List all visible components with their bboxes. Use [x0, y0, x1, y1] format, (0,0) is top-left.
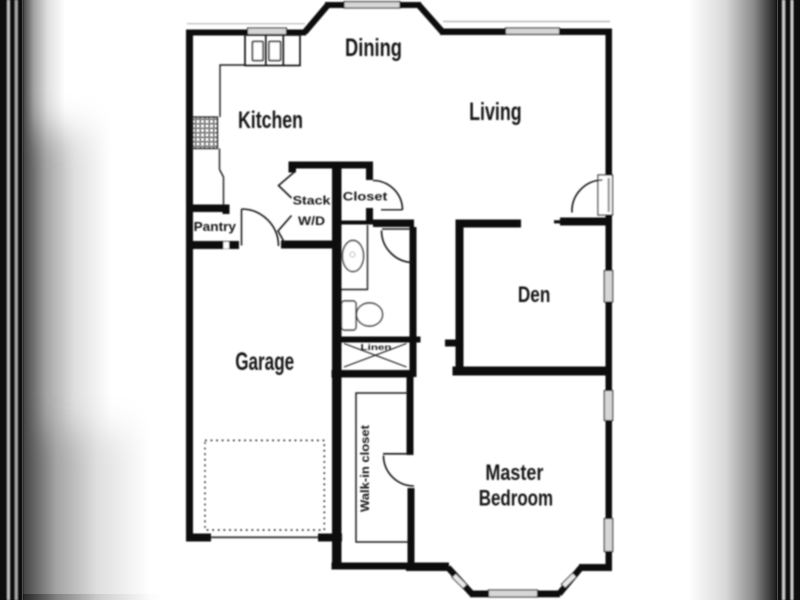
svg-text:Pantry: Pantry: [194, 220, 236, 234]
svg-text:Dining: Dining: [345, 34, 402, 62]
svg-text:W/D: W/D: [298, 214, 325, 228]
svg-text:Stack: Stack: [293, 195, 332, 207]
svg-text:Master: Master: [485, 460, 543, 485]
svg-text:Bedroom: Bedroom: [479, 486, 553, 511]
svg-text:Linen: Linen: [361, 342, 392, 352]
svg-text:Closet: Closet: [343, 190, 388, 204]
svg-text:Garage: Garage: [235, 348, 294, 376]
svg-text:Den: Den: [518, 282, 550, 307]
svg-text:Kitchen: Kitchen: [238, 107, 303, 134]
svg-text:Living: Living: [469, 98, 522, 126]
svg-text:Walk-in closet: Walk-in closet: [360, 425, 372, 512]
